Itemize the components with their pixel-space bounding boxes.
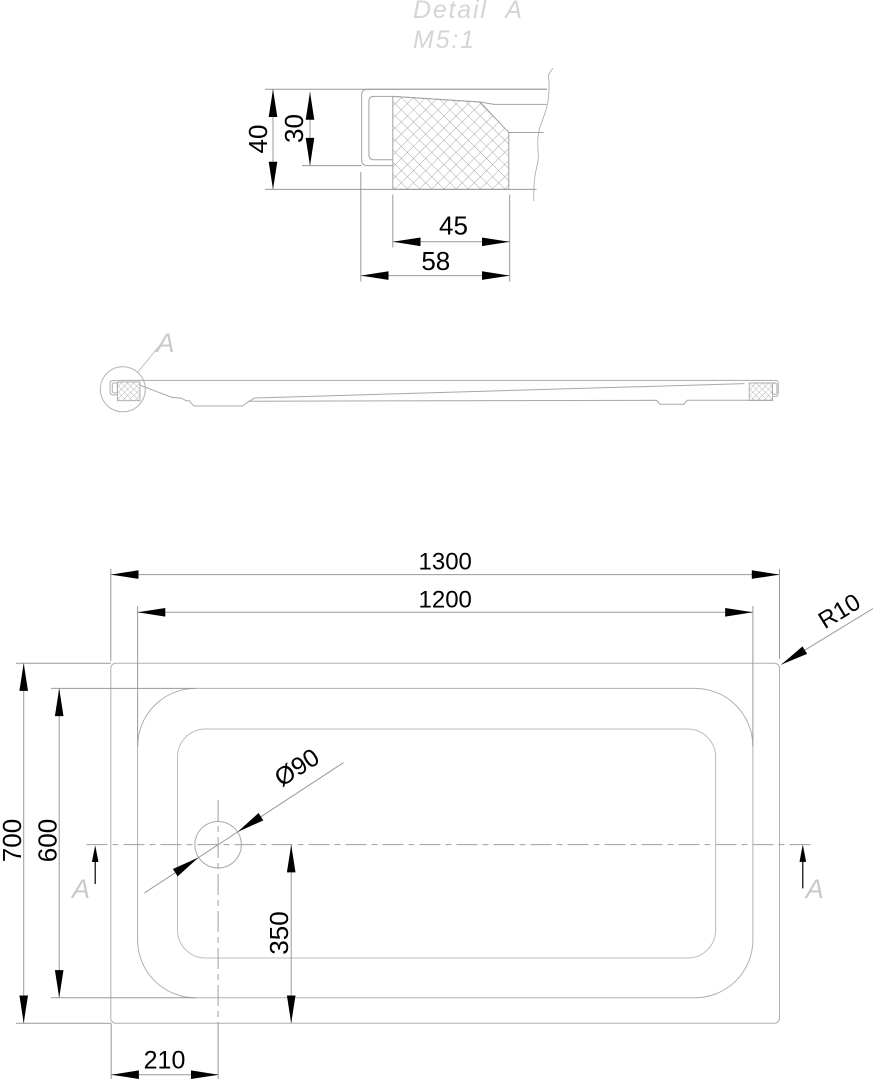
- svg-text:600: 600: [33, 819, 63, 862]
- svg-text:R10: R10: [814, 589, 866, 635]
- svg-text:Detail A: Detail A: [413, 0, 524, 24]
- svg-text:A: A: [804, 874, 824, 904]
- svg-text:A: A: [70, 874, 90, 904]
- svg-text:700: 700: [0, 819, 27, 862]
- svg-text:210: 210: [144, 1047, 186, 1075]
- svg-text:58: 58: [421, 246, 450, 276]
- svg-text:Ø90: Ø90: [270, 743, 325, 792]
- svg-text:A: A: [154, 328, 174, 358]
- svg-text:1300: 1300: [419, 548, 472, 575]
- svg-text:30: 30: [279, 114, 309, 143]
- svg-text:45: 45: [439, 211, 468, 241]
- svg-text:40: 40: [243, 125, 273, 154]
- svg-text:M5:1: M5:1: [413, 26, 476, 54]
- svg-text:1200: 1200: [419, 587, 472, 614]
- svg-text:350: 350: [264, 911, 294, 954]
